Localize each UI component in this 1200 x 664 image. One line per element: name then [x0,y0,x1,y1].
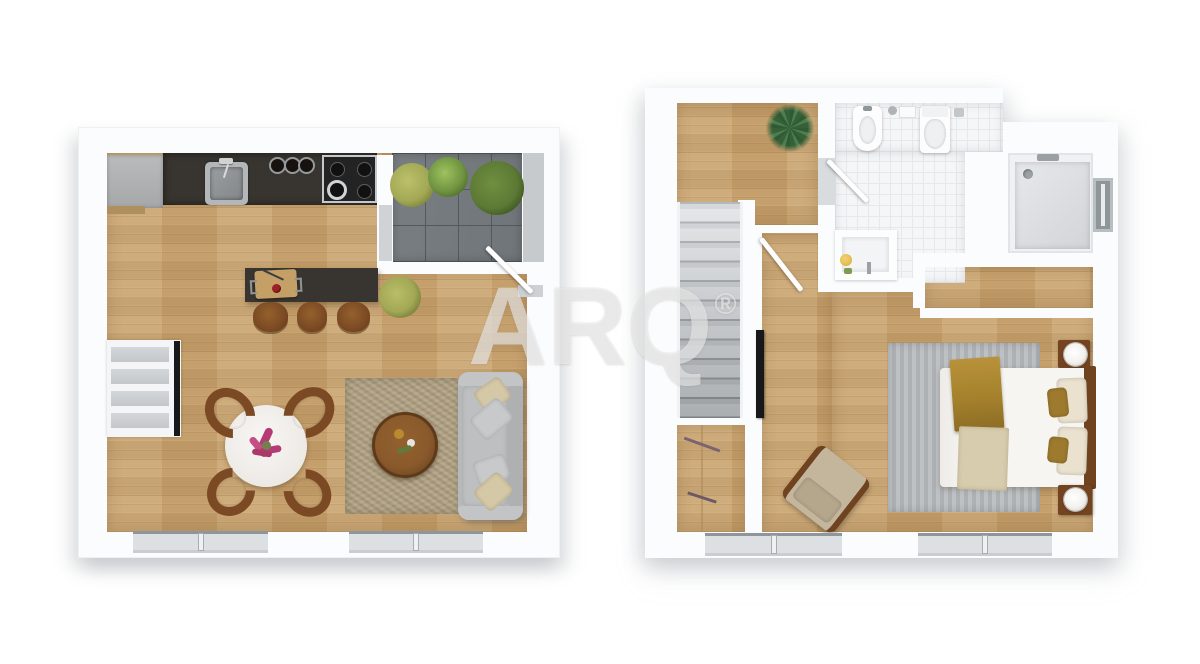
burner-tl [330,162,345,177]
bathroom-wall-lower [818,205,835,283]
bar-stool-3 [337,302,370,332]
shelf-unit [107,340,181,437]
cabinet-wood-edge [107,206,145,214]
sofa [458,372,523,520]
floor-2-plan-wrap [645,88,1118,558]
bar-stool-2 [297,302,327,332]
window-mullion [983,536,987,553]
window-mullion [199,534,203,550]
toilet-tank [922,106,948,117]
coffee-table [372,412,438,478]
bedroom-door-wall [745,225,818,233]
bar-stool-1 [253,302,288,332]
paper-holder [888,106,897,115]
flush-fitting [954,108,964,117]
bed-cushion-gold-1 [1047,387,1070,418]
beige-throw [957,426,1009,491]
board-handle-left [250,280,258,294]
toilet [920,106,950,153]
staircase [677,202,743,418]
wall-basin [899,106,916,118]
palm-plant [766,104,814,152]
terrace-plant-3 [470,161,524,215]
bath-shower-dividing-wall [965,152,1003,253]
burner-tr [357,162,372,177]
closet-divider [701,425,703,532]
niche-bottom-wall [920,308,1098,318]
floor2-window-left [705,533,842,556]
bidet [853,106,882,151]
vanity-unit [835,230,897,280]
terrace-sliding-door [379,205,392,261]
kitchen-sink [205,162,248,205]
bidet-faucet [863,106,872,111]
terrace-plant-1 [390,163,434,207]
side-window [1093,178,1113,232]
stairs-bottom-wall [675,418,748,425]
hob-jar-3 [298,157,315,174]
shelf-2 [111,369,169,384]
terrace-wall [377,262,543,274]
board-handle-right [295,278,303,292]
tv-panel-bedroom [756,330,764,418]
floor-1-plan [78,127,560,558]
floor-2-plan [645,88,1118,558]
vanity-bowl-gold [840,254,852,266]
coffee-table-sprig [397,445,413,455]
terrace-parapet [522,153,544,262]
floor2-window-right [918,533,1052,556]
bed-cushion-gold-2 [1047,436,1070,464]
floor1-window-right [349,531,483,553]
indoor-plant [379,276,421,318]
vanity-faucet [867,262,871,274]
flower-greens [262,441,271,450]
window-mullion [414,534,418,550]
burner-bl-large [327,180,347,200]
table-lamp-top [1064,343,1087,366]
gas-stove [322,155,377,203]
side-window-slit [1101,184,1105,226]
sink-faucet [219,158,233,164]
shower-drain [1023,169,1033,179]
toilet-bowl [924,119,946,149]
burner-br [357,184,372,199]
tomato [272,284,281,293]
vanity-plant [844,268,852,274]
shower-fixture [1037,154,1059,161]
tv-panel-floor1 [174,341,180,436]
shelf-3 [111,391,169,406]
window-mullion [772,536,776,553]
wall-below-shower [913,253,1093,267]
bathroom-bottom-wall [818,278,920,292]
floor1-window-left [133,531,268,553]
shelf-4 [111,413,169,428]
shower-enclosure [1008,153,1093,253]
terrace-plant-2 [428,157,468,197]
coffee-table-decor-gold [394,429,404,439]
table-lamp-bottom [1064,488,1087,511]
fridge-cabinet [107,155,163,208]
knife [263,270,284,281]
shelf-1 [111,347,169,362]
bidet-bowl [859,116,876,144]
gold-blanket [950,356,1005,431]
bathroom-wall-upper [818,103,835,158]
